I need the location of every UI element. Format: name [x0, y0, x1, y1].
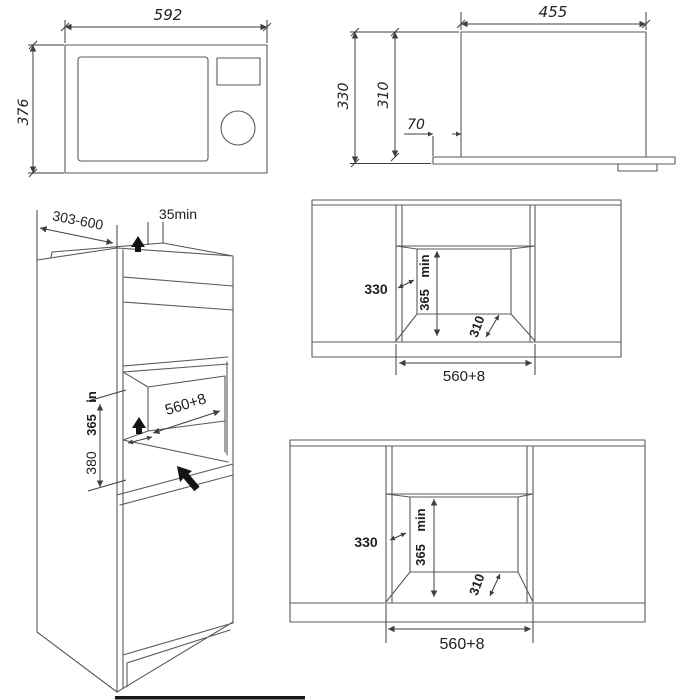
microwave-door	[78, 57, 208, 161]
scan-artifact-bar	[115, 696, 305, 700]
microwave-display	[217, 58, 260, 85]
microwave-knob	[221, 111, 255, 145]
lower-side-depth-label: 330	[354, 534, 378, 550]
cabinet-outline	[37, 243, 233, 692]
installation-diagram-sheet: 592 376 455 330 310 70 303-600 35min in	[0, 0, 700, 700]
niche-upper-structure	[312, 205, 621, 342]
side-body-height-label: 310	[376, 82, 392, 109]
cabinet-niche-width-arrow	[153, 411, 220, 433]
lower-floor-depth-arrow	[490, 574, 500, 596]
diagram-svg: 592 376 455 330 310 70 303-600 35min in	[0, 0, 700, 700]
cabinet-niche-width-label: 560+8	[163, 390, 208, 419]
niche-lower-view: 330 min 365 310 560+8	[290, 440, 645, 653]
lower-opening-width-label: 560+8	[440, 636, 485, 653]
lower-min-height-value: 365	[413, 544, 428, 566]
microwave-outline	[65, 45, 267, 173]
niche-height-365-label: 365	[84, 414, 99, 436]
niche-height-unit-label: in	[84, 391, 99, 403]
cabinet-view: 303-600 35min in 365 380 560+8	[37, 206, 233, 692]
niche-upper-view: 330 min 365 310 560+8	[312, 200, 621, 385]
overall-height-extensions	[350, 28, 459, 167]
upper-floor-depth-label: 310	[466, 314, 488, 340]
cabinet-depth-range-label: 303-600	[51, 207, 105, 233]
front-height-label: 376	[16, 99, 32, 126]
upper-opening-width-label: 560+8	[443, 368, 485, 385]
side-view: 455 330 310 70	[336, 3, 675, 171]
upper-min-height-unit: min	[417, 254, 432, 277]
upper-side-depth-arrow	[398, 280, 414, 288]
front-width-label: 592	[154, 6, 183, 24]
fascia-offset-lines	[404, 134, 433, 156]
side-fascia-offset-label: 70	[407, 117, 425, 133]
top-clearance-label: 35min	[159, 206, 197, 222]
upper-side-depth-label: 330	[364, 281, 388, 297]
niche-lower-outline	[290, 440, 645, 622]
side-foot	[618, 164, 657, 171]
side-overall-height-label: 330	[336, 83, 352, 110]
side-body	[461, 32, 646, 157]
lower-floor-depth-label: 310	[466, 572, 488, 598]
lower-min-height-unit: min	[413, 508, 428, 531]
niche-up-arrow-icon	[132, 417, 146, 434]
niche-lower-structure	[290, 446, 645, 603]
upper-min-height-value: 365	[417, 289, 432, 311]
upper-floor-depth-arrow	[486, 315, 499, 337]
insert-direction-arrow-icon	[177, 466, 200, 491]
side-depth-label: 455	[539, 3, 568, 21]
niche-floor-small-arrow	[128, 437, 152, 443]
front-view: 592 376	[16, 6, 271, 177]
side-base-plate	[433, 157, 675, 164]
niche-height-380-label: 380	[83, 451, 99, 475]
